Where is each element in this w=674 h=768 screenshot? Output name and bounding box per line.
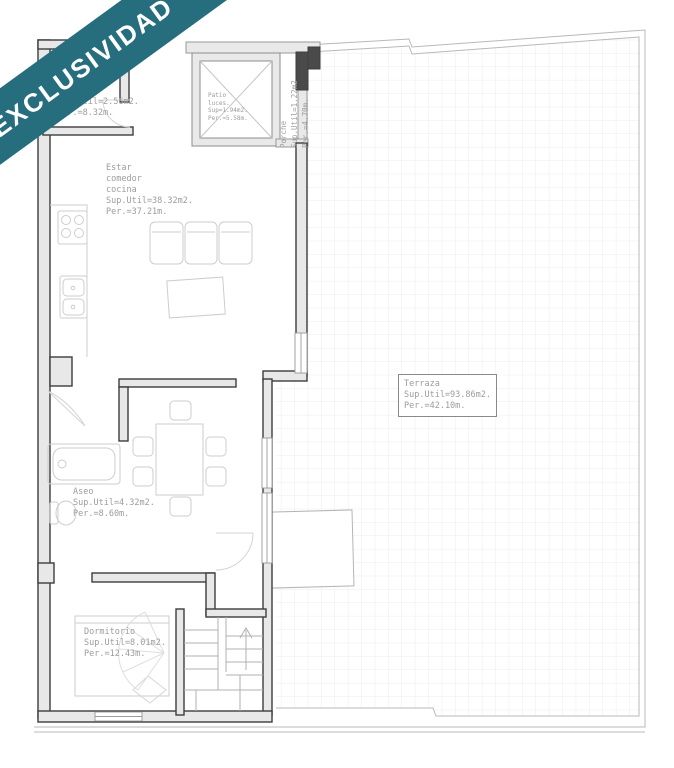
- kitchen: [50, 205, 87, 357]
- door-aseo: [48, 391, 85, 426]
- wall-bottom: [38, 711, 272, 722]
- chair: [170, 401, 191, 420]
- chair: [206, 467, 226, 486]
- chair: [206, 437, 226, 456]
- kitchen-counter: [50, 205, 87, 357]
- terrace-platform: [270, 510, 354, 588]
- wall-aseo: [119, 387, 128, 441]
- label-dormitorio: Dormitorio Sup.Util=8.01m2. Per.=12.43m.: [84, 627, 166, 660]
- label-estar: Estar comedor cocina Sup.Util=38.32m2. P…: [106, 163, 193, 218]
- wall-hall-top: [119, 379, 236, 387]
- wall-bedroom-top: [92, 573, 214, 582]
- staircase: [184, 617, 263, 711]
- living-furniture: [133, 222, 252, 516]
- door-hall: [216, 533, 253, 570]
- wall-stair-left: [176, 609, 184, 715]
- wall-smallroom-bottom: [43, 127, 133, 135]
- dining-table: [156, 424, 203, 495]
- label-patio-luces: Patio luces. Sup=1.94m2. Per.=5.58m.: [208, 92, 248, 122]
- wall-kitchen-jog: [50, 357, 72, 386]
- toilet: [50, 502, 58, 524]
- sofa-cushion: [219, 222, 252, 264]
- label-terraza: Terraza Sup.Util=93.86m2. Per.=42.10m.: [398, 374, 497, 417]
- wall-left-jog: [38, 563, 54, 583]
- floorplan-page: Sup.Util=2.56m2. Per.=8.32m. Patio luces…: [0, 0, 674, 768]
- sink: [60, 276, 87, 318]
- chair: [133, 437, 153, 456]
- label-porche: Porche Sup.Util=1.22m2 Per.=4.70m.: [279, 48, 312, 148]
- sofa-cushion: [185, 222, 217, 264]
- wall-stair-top: [206, 609, 266, 617]
- wall-left: [38, 40, 50, 718]
- bathtub: [48, 444, 120, 484]
- coffee-table: [167, 277, 225, 318]
- stove: [58, 211, 87, 244]
- label-aseo: Aseo Sup.Util=4.32m2. Per.=8.60m.: [73, 487, 155, 520]
- sofa-cushion: [150, 222, 183, 264]
- chair: [133, 467, 153, 486]
- chair: [170, 497, 191, 516]
